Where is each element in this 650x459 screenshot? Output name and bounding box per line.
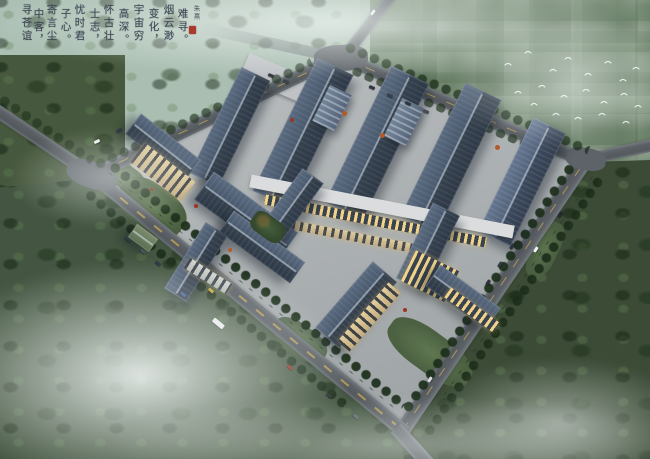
autumn-tree	[380, 133, 385, 138]
autumn-tree	[290, 118, 294, 122]
calligraphy-column: 宇宙穷	[133, 4, 144, 43]
calligraphy-column: 怀古壮	[103, 4, 114, 43]
calligraphy-column: 寻苍谊	[21, 4, 32, 43]
calligraphy-column: 变化，	[148, 8, 159, 47]
autumn-tree	[403, 308, 407, 312]
rendering-canvas: 难寻。 烟云渺 变化， 宇宙穷 高深。 怀古壮 士志， 忧时君 子心。 寄言尘 …	[0, 0, 650, 459]
calligraphy-column: 难寻。	[177, 8, 188, 47]
autumn-tree	[342, 111, 347, 116]
calligraphy-column: 高深。	[118, 8, 129, 47]
calligraphy-column: 寄言尘	[46, 4, 57, 43]
bird-flock	[495, 42, 645, 142]
calligraphy-column: 士志，	[89, 8, 100, 47]
calligraphy-signature: 朱熹	[191, 5, 201, 20]
calligraphy-overlay: 难寻。 烟云渺 变化， 宇宙穷 高深。 怀古壮 士志， 忧时君 子心。 寄言尘 …	[14, 2, 208, 80]
calligraphy-column: 中客，	[33, 8, 44, 47]
calligraphy-column: 烟云渺	[163, 4, 174, 43]
autumn-tree	[194, 204, 198, 208]
calligraphy-column: 忧时君	[74, 4, 85, 43]
autumn-tree	[228, 248, 232, 252]
autumn-tree	[150, 188, 153, 191]
calligraphy-column: 子心。	[60, 8, 71, 47]
autumn-tree	[495, 145, 500, 150]
calligrapher-seal	[189, 26, 196, 34]
